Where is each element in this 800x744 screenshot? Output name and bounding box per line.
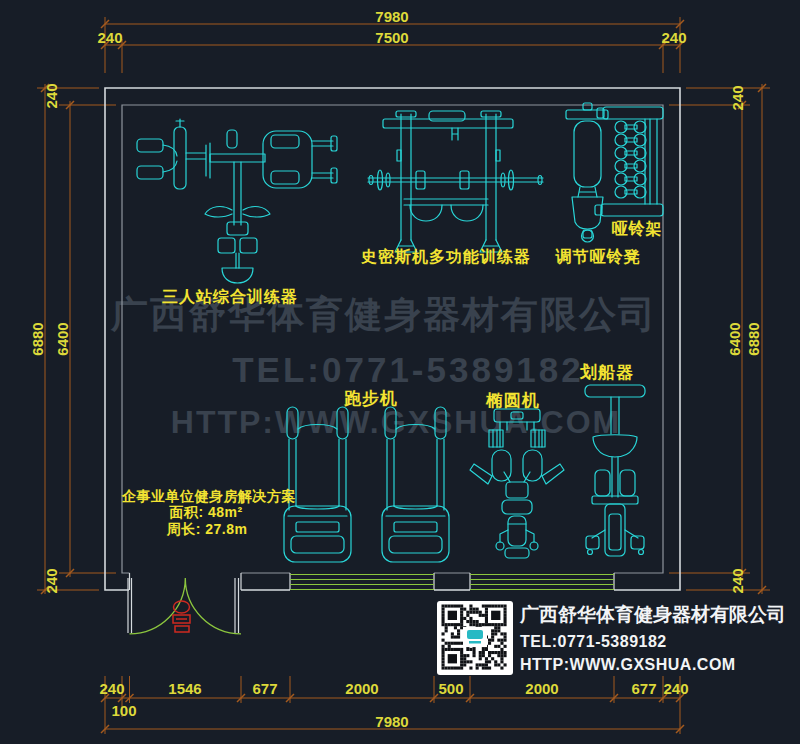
dim-top-left-wall: 240 — [97, 30, 122, 45]
dim-left-top-wall: 240 — [44, 83, 59, 108]
door — [128, 578, 241, 634]
treadmill-drawing-2 — [382, 407, 449, 562]
dim-top-right-wall: 240 — [661, 30, 686, 45]
dim-left-outer: 6880 — [30, 322, 45, 355]
dim-bottom-seg-5: 500 — [438, 681, 463, 696]
solution-area: 面积: 48m² — [169, 505, 242, 519]
dimension-lines — [37, 17, 770, 734]
floor-plan-drawing — [0, 0, 800, 744]
footer-website: HTTP:WWW.GXSHUA.COM — [520, 657, 736, 673]
dim-bottom-seg-3: 677 — [252, 681, 277, 696]
door-tag — [173, 601, 190, 632]
dim-bottom-total: 7980 — [375, 714, 408, 729]
window-lines — [290, 575, 614, 590]
dim-left-bottom-wall: 240 — [44, 568, 59, 593]
label-treadmill: 跑步机 — [344, 390, 398, 407]
label-adjustable-bench: 调节哑铃凳 — [556, 249, 641, 265]
dim-bottom-seg-7: 677 — [631, 681, 656, 696]
qr-code — [437, 601, 513, 675]
footer-company: 广西舒华体育健身器材有限公司 — [520, 605, 786, 624]
qr-center-logo — [467, 630, 483, 644]
dumbbell-rows — [615, 121, 646, 198]
label-smith-machine: 史密斯机多功能训练器 — [361, 249, 531, 265]
rower-drawing — [585, 385, 645, 556]
multi-station-trainer-drawing — [137, 119, 337, 283]
adjustable-bench-drawing — [566, 103, 608, 242]
dumbbell-rack-drawing — [595, 107, 663, 216]
dim-right-bottom-wall: 240 — [730, 568, 745, 593]
dim-top-inner: 7500 — [375, 30, 408, 45]
dim-left-inner: 6400 — [55, 322, 70, 355]
treadmill-drawing — [284, 407, 351, 562]
label-rower: 划船器 — [580, 364, 634, 381]
dim-right-top-wall: 240 — [730, 85, 745, 110]
dim-right-outer: 6880 — [746, 322, 761, 355]
solution-title: 企事业单位健身房解决方案 — [122, 489, 296, 503]
dim-bottom-seg-1: 240 — [99, 681, 124, 696]
solution-perimeter: 周长: 27.8m — [167, 522, 248, 536]
dim-bottom-seg-2: 1546 — [168, 681, 201, 696]
dim-bottom-seg-6: 2000 — [525, 681, 558, 696]
dim-right-inner: 6400 — [727, 322, 742, 355]
dim-top-total: 7980 — [375, 9, 408, 24]
dim-bottom-seg-8: 240 — [663, 681, 688, 696]
elliptical-drawing — [470, 409, 564, 558]
footer-tel: TEL:0771-5389182 — [520, 634, 667, 650]
label-elliptical: 椭圆机 — [486, 392, 540, 409]
dim-bottom-seg-4: 2000 — [345, 681, 378, 696]
cad-floorplan-view: 广西舒华体育健身器材有限公司 TEL:0771-5389182 HTTP:WWW… — [0, 0, 800, 744]
dim-bottom-sub-offset: 100 — [111, 703, 136, 718]
label-multi-station: 三人站综合训练器 — [162, 289, 298, 305]
smith-machine-drawing — [368, 111, 543, 252]
label-dumbbell-rack: 哑铃架 — [612, 221, 663, 237]
